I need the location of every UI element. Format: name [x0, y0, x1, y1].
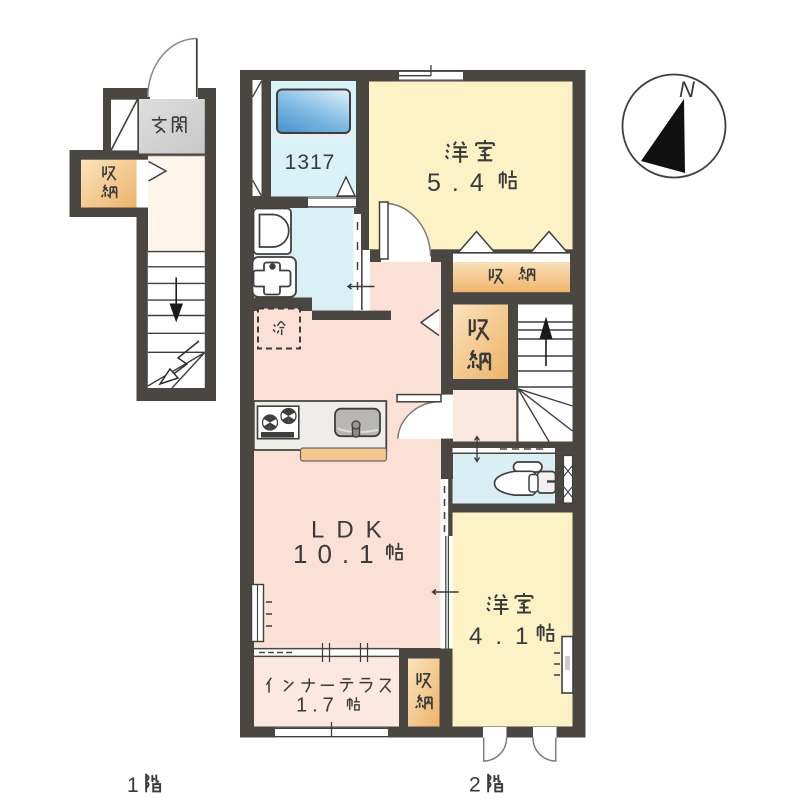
svg-text:2: 2 [469, 774, 481, 797]
svg-text:4.1: 4.1 [469, 623, 541, 650]
svg-text:1317: 1317 [285, 151, 336, 174]
svg-text:10.1: 10.1 [293, 539, 384, 569]
svg-text:1.7: 1.7 [296, 695, 339, 717]
svg-text:1: 1 [127, 774, 139, 797]
svg-text:5.4: 5.4 [427, 169, 495, 197]
svg-text:N: N [679, 77, 695, 102]
